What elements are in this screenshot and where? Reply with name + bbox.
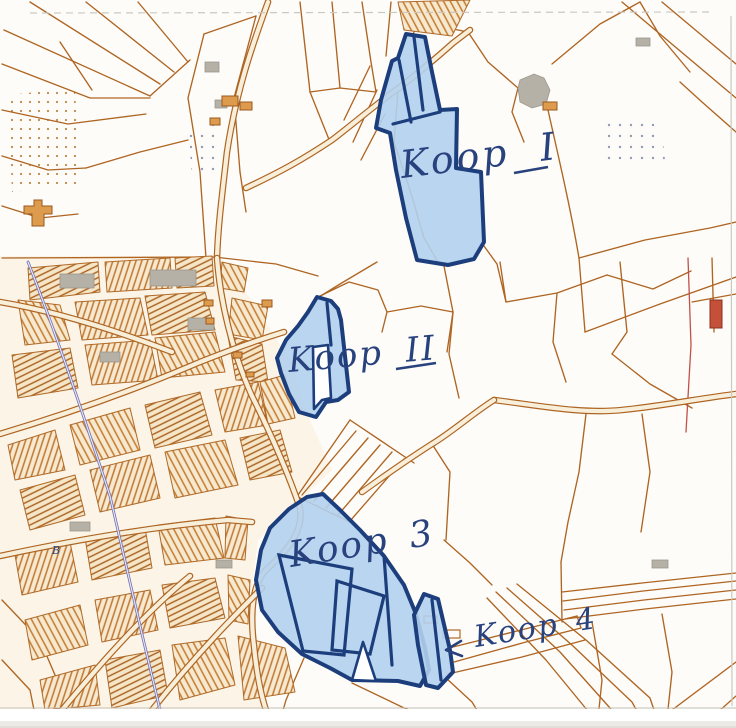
building-orange [206, 318, 214, 324]
building-orange [204, 300, 213, 306]
building-gray [60, 274, 94, 288]
building-red [710, 300, 722, 328]
building-orange [543, 102, 557, 110]
building-gray [70, 522, 90, 531]
label-b: B [51, 544, 60, 557]
orchard-area [8, 88, 80, 192]
building-gray [636, 38, 650, 46]
scanned-cadastral-map-page: Koop I Koop II Koop 3 Koop 4 B [0, 0, 736, 728]
scan-shadow [0, 721, 736, 726]
building-gray [205, 62, 219, 72]
building-gray [150, 270, 196, 286]
urban-block [85, 340, 158, 385]
building-orange [262, 300, 272, 307]
building-orange [222, 96, 238, 106]
building-gray [652, 560, 668, 568]
building-orange [240, 102, 252, 110]
orchard-area [600, 115, 665, 168]
building-gray [100, 352, 120, 362]
building-orange [246, 372, 254, 377]
building-gray [216, 560, 232, 568]
cadastral-map: Koop I Koop II Koop 3 Koop 4 B [0, 0, 736, 728]
building-orange [233, 352, 242, 358]
building-orange [210, 118, 220, 125]
